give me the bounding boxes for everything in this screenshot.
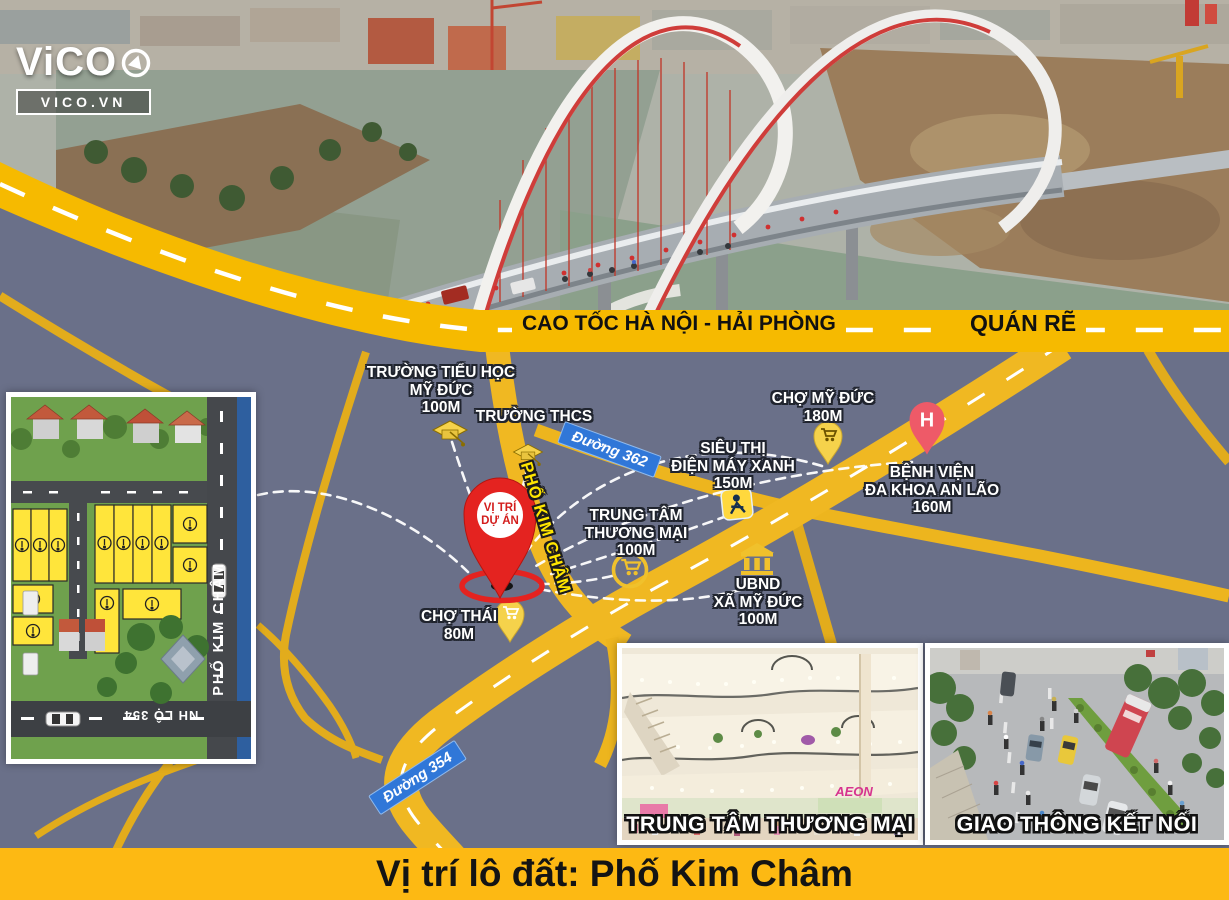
vico-logo: ViCO VICO.VN — [16, 40, 151, 115]
market-pin-icon — [814, 422, 842, 464]
project-marker-label: VỊ TRÍDỰ ÁN — [481, 502, 519, 528]
vico-url: VICO.VN — [16, 89, 151, 115]
government-building-icon — [740, 543, 774, 575]
footer-title: Vị trí lô đất: Phố Kim Châm — [376, 853, 853, 895]
poi-label-tttm: TRUNG TÂMTHƯƠNG MẠI100M — [585, 507, 688, 560]
site-plan-art: PHỐ KIM CHÂM NH LỘ 354 — [11, 397, 251, 759]
mall-caption: TRUNG TÂM THƯƠNG MẠI — [622, 812, 918, 837]
traffic-inset: GIAO THÔNG KẾT NỐI — [925, 643, 1229, 845]
shutter-icon — [121, 48, 151, 78]
poi-label-truong-thcs: TRƯỜNG THCS — [476, 408, 593, 426]
poi-label-dien-may-xanh: SIÊU THỊĐIỆN MÁY XANH150M — [671, 440, 795, 493]
poi-label-ubnd: UBNDXÃ MỸ ĐỨC100M — [714, 576, 803, 629]
svg-text:H: H — [920, 409, 934, 431]
market-pin-icon — [496, 600, 524, 642]
mall-inset: AEON TRUNG TÂM THƯƠNG MẠI — [617, 643, 923, 845]
poi-label-cho-thai: CHỢ THÁI80M — [421, 608, 497, 643]
poster: ViCO VICO.VN CAO TỐC HÀ NỘI - HẢI PHÒNG … — [0, 0, 1229, 900]
graduation-cap-icon — [433, 421, 467, 447]
hospital-pin-icon: H — [910, 402, 945, 455]
site-plan-road-label: NH LỘ 354 — [124, 708, 199, 723]
poi-label-benh-vien: BỆNH VIỆNĐA KHOA AN LÃO160M — [865, 464, 999, 517]
footer-title-band: Vị trí lô đất: Phố Kim Châm — [0, 848, 1229, 900]
poi-label-cho-my-duc: CHỢ MỸ ĐỨC180M — [772, 390, 875, 425]
traffic-caption: GIAO THÔNG KẾT NỐI — [930, 812, 1224, 837]
site-plan-street-label: PHỐ KIM CHÂM — [209, 562, 227, 696]
site-plan-inset: PHỐ KIM CHÂM NH LỘ 354 — [6, 392, 256, 764]
vico-logo-text: ViCO — [16, 40, 117, 85]
aeon-sign: AEON — [834, 784, 873, 799]
